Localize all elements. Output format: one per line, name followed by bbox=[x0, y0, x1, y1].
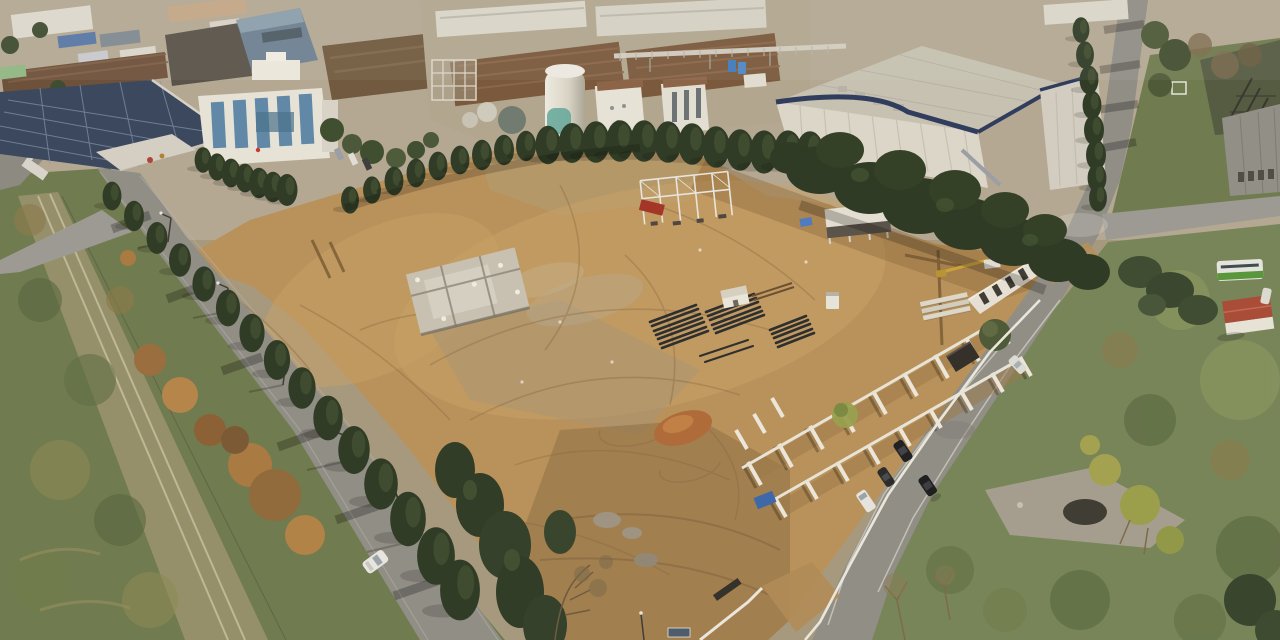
aerial-photo bbox=[0, 0, 1280, 640]
warm-cast bbox=[0, 0, 1280, 640]
